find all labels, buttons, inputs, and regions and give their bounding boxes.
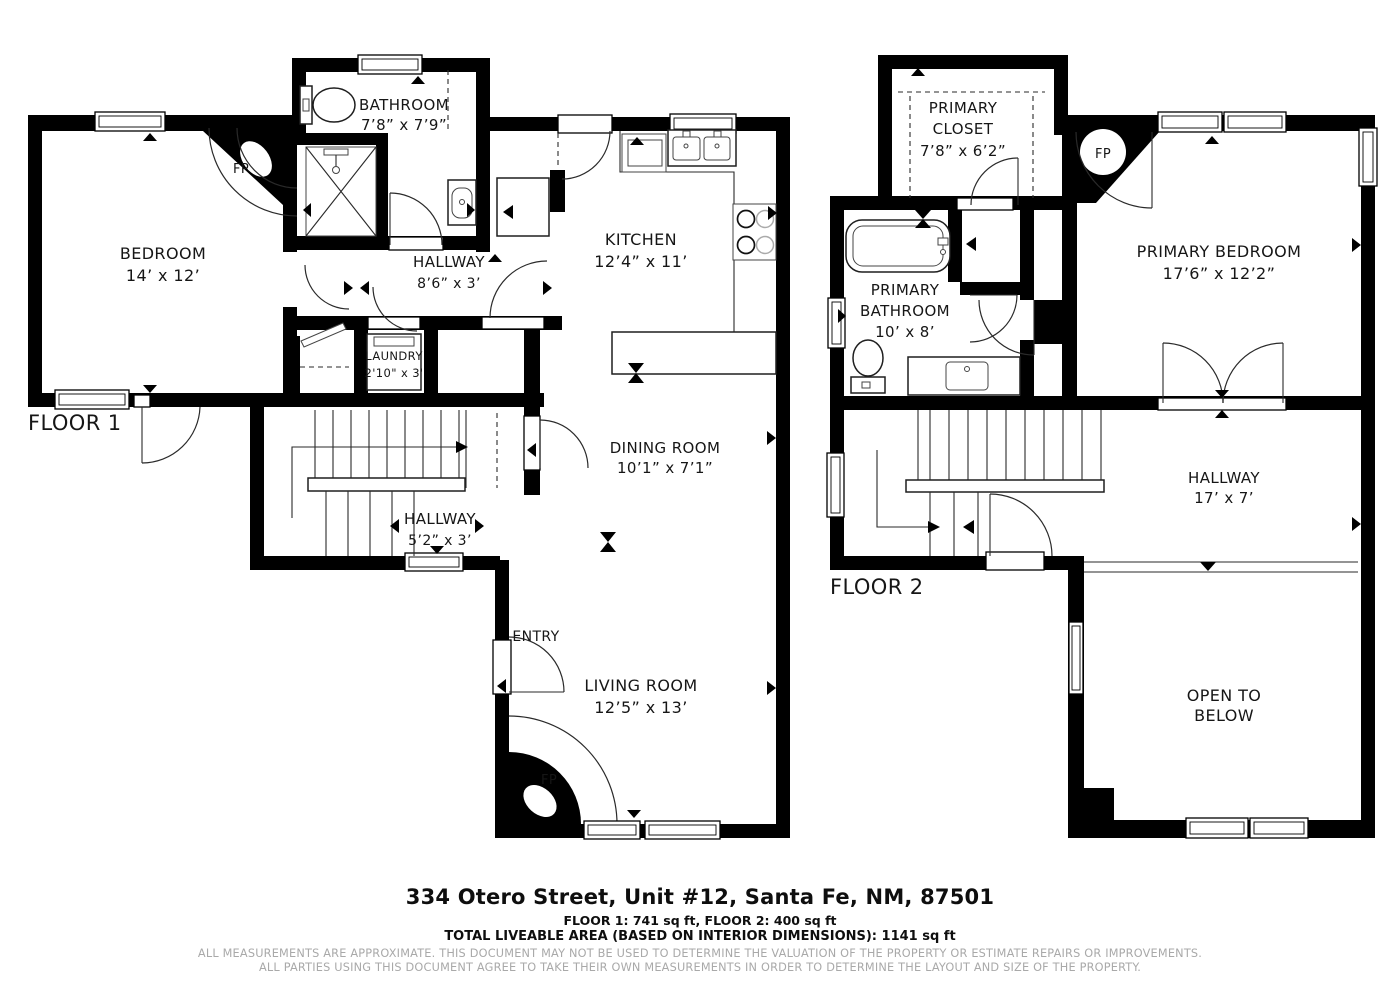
entry-label: ENTRY	[512, 629, 559, 645]
dining-room-dims: 10’1” x 7’1”	[617, 459, 713, 477]
living-room-fireplace	[509, 716, 617, 824]
hallway-lower-dims: 5’2” x 3’	[408, 533, 472, 549]
laundry-label: LAUNDRY	[365, 349, 423, 363]
primary-bedroom-fp-label: FP	[1095, 147, 1111, 162]
bathroom-label: BATHROOM	[359, 96, 449, 114]
open-to-below-label1: OPEN TO	[1187, 686, 1262, 705]
hallway-lower-label: HALLWAY	[404, 510, 476, 528]
property-address: 334 Otero Street, Unit #12, Santa Fe, NM…	[0, 885, 1400, 909]
floor1-bathroom-toilet	[300, 86, 355, 124]
floor1-bathroom-sink	[448, 180, 476, 225]
living-fp-label: FP	[541, 773, 557, 788]
disclaimer-line-1: ALL MEASUREMENTS ARE APPROXIMATE. THIS D…	[0, 947, 1400, 961]
disclaimer-line-2: ALL PARTIES USING THIS DOCUMENT AGREE TO…	[0, 961, 1400, 975]
floor2-bathtub	[846, 220, 950, 272]
floor2-plan: PRIMARY CLOSET 7’8” x 6’2” PRIMARY BATHR…	[827, 55, 1377, 838]
floor-areas-line: FLOOR 1: 741 sq ft, FLOOR 2: 400 sq ft	[0, 913, 1400, 928]
bedroom-label: BEDROOM	[120, 244, 206, 263]
living-room-dims: 12’5” x 13’	[594, 698, 687, 717]
laundry-dims: 2'10" x 3'	[365, 366, 424, 380]
hallway-upper-label: HALLWAY	[413, 253, 485, 271]
primary-bathroom-label1: PRIMARY	[871, 281, 940, 299]
footer: 334 Otero Street, Unit #12, Santa Fe, NM…	[0, 885, 1400, 975]
kitchen-sink	[668, 130, 736, 166]
kitchen-fridge	[497, 133, 558, 236]
floor1-shower	[306, 147, 376, 236]
open-to-below-label2: BELOW	[1194, 706, 1254, 725]
total-area-line: TOTAL LIVEABLE AREA (BASED ON INTERIOR D…	[0, 929, 1400, 944]
floor2-vanity	[908, 357, 1020, 395]
primary-bathroom-label2: BATHROOM	[860, 302, 950, 320]
primary-closet-dims: 7’8” x 6’2”	[920, 142, 1006, 160]
primary-bedroom-label: PRIMARY BEDROOM	[1137, 242, 1302, 261]
primary-bedroom-dims: 17’6” x 12’2”	[1163, 264, 1276, 283]
floor2-hallway-label: HALLWAY	[1188, 469, 1260, 487]
kitchen-dims: 12’4” x 11’	[594, 252, 687, 271]
primary-bathroom-dims: 10’ x 8’	[875, 323, 935, 341]
open-to-below-railing	[1084, 562, 1358, 572]
floor-plan-drawing: BEDROOM 14’ x 12’ BATHROOM 7’8” x 7’9” H…	[0, 0, 1400, 990]
bathroom-dims: 7’8” x 7’9”	[361, 116, 447, 134]
living-room-label: LIVING ROOM	[584, 676, 697, 695]
floor1-plan: BEDROOM 14’ x 12’ BATHROOM 7’8” x 7’9” H…	[28, 55, 790, 839]
primary-closet-label1: PRIMARY	[929, 99, 998, 117]
floor2-hallway-dims: 17’ x 7’	[1194, 489, 1254, 507]
dining-room-label: DINING ROOM	[610, 439, 721, 457]
hallway-upper-dims: 8’6” x 3’	[417, 276, 481, 292]
floor2-toilet	[851, 340, 885, 393]
floor2-title: FLOOR 2	[830, 575, 924, 599]
bedroom-dims: 14’ x 12’	[126, 266, 200, 285]
bedroom-fp-label: FP	[233, 162, 249, 177]
primary-closet-label2: CLOSET	[933, 120, 994, 138]
floor-plan-page: BEDROOM 14’ x 12’ BATHROOM 7’8” x 7’9” H…	[0, 0, 1400, 990]
floor1-title: FLOOR 1	[28, 411, 122, 435]
kitchen-label: KITCHEN	[605, 230, 677, 249]
